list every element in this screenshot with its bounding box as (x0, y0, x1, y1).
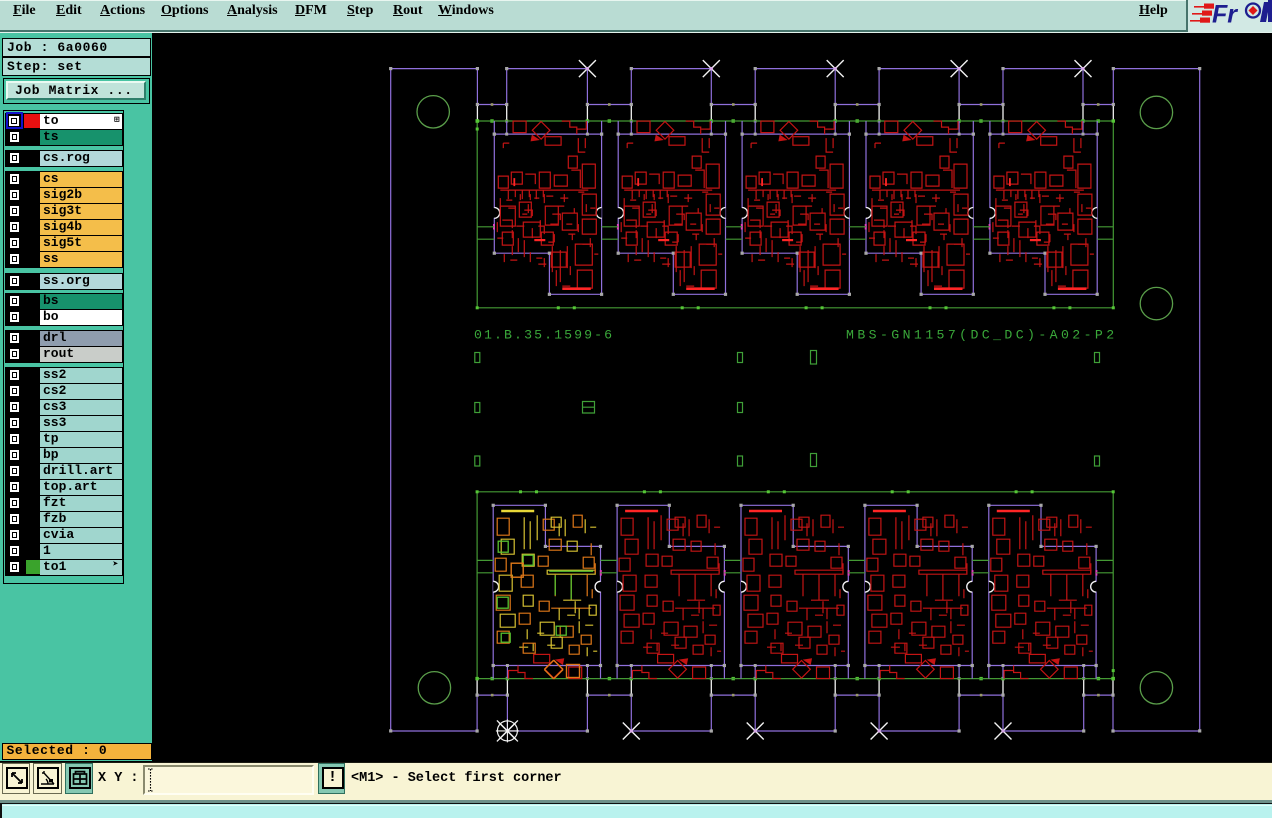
svg-text:01.B.35.1599-6: 01.B.35.1599-6 (474, 328, 614, 343)
svg-text:Fr: Fr (1212, 1, 1238, 29)
svg-text:MBS-GN1157(DC_DC)-A02-P2: MBS-GN1157(DC_DC)-A02-P2 (846, 328, 1118, 343)
